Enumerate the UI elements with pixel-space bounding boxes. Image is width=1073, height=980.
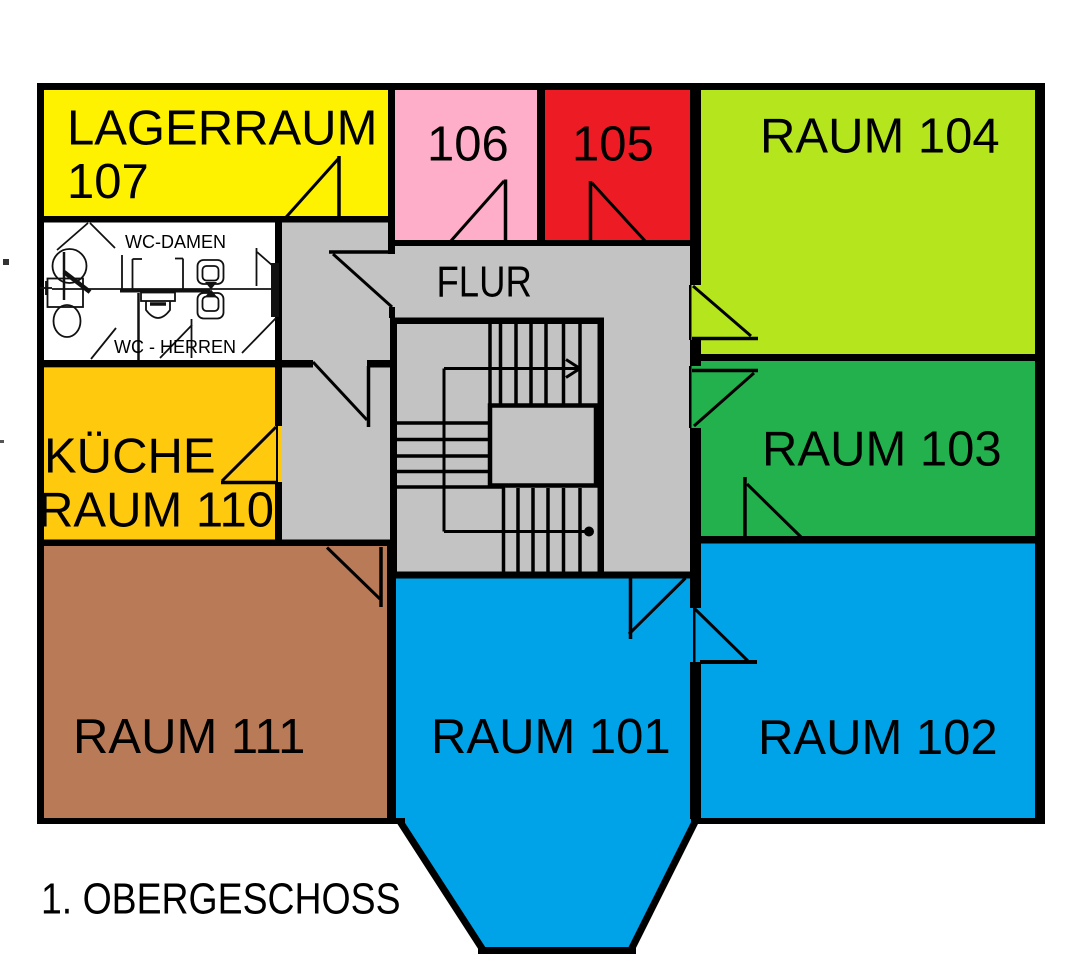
svg-text:1. OBERGESCHOSS: 1. OBERGESCHOSS — [41, 874, 401, 924]
svg-text:106: 106 — [427, 118, 509, 172]
svg-text:FLUR: FLUR — [436, 256, 531, 306]
svg-text:105: 105 — [572, 118, 654, 172]
svg-text:WC - HERREN: WC - HERREN — [114, 337, 236, 357]
svg-text:107: 107 — [67, 155, 149, 209]
svg-text:KÜCHE: KÜCHE — [44, 430, 216, 484]
svg-text:RAUM 103: RAUM 103 — [762, 423, 1002, 477]
svg-text:WC-DAMEN: WC-DAMEN — [125, 232, 226, 252]
svg-text:LAGERRAUM: LAGERRAUM — [67, 102, 377, 156]
svg-text:RAUM 110: RAUM 110 — [38, 484, 274, 538]
svg-text:RAUM 111: RAUM 111 — [73, 710, 305, 764]
svg-text:RAUM 104: RAUM 104 — [760, 110, 1000, 164]
svg-text:RAUM 102: RAUM 102 — [758, 711, 998, 765]
svg-text:RAUM 101: RAUM 101 — [431, 710, 671, 764]
